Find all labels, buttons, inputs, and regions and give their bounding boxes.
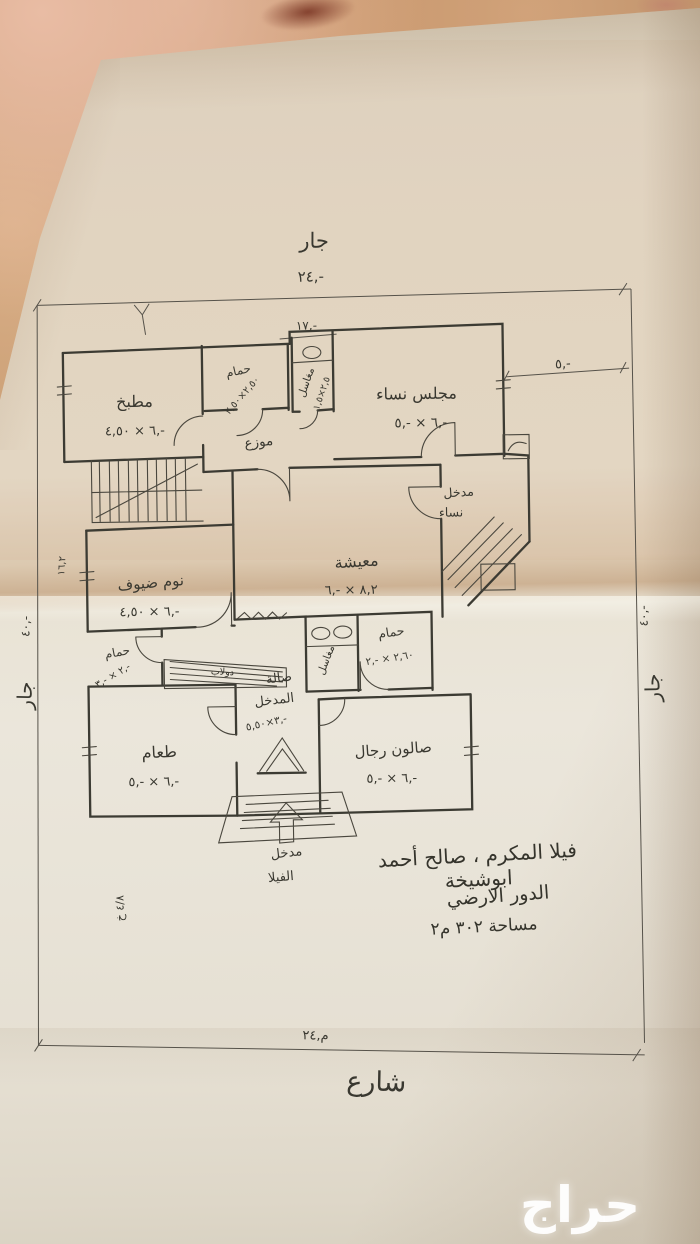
label-living: معيشة — [334, 550, 379, 572]
floor-plan-drawing: جار ٢٤,- ١٧,- ٥,- جار ٤٠,- جار ٤٠,- ١٦,٢… — [0, 0, 700, 1244]
label-neighbor-right: جار — [640, 673, 664, 702]
label-wash-top-dims: ١,٥×٢,٥ — [311, 375, 333, 411]
label-dim-top: ٢٤,- — [298, 267, 325, 285]
up-arrow-icon — [270, 803, 303, 843]
label-bath-mid-dims: ٢,- × ٢,٦٠ — [365, 649, 415, 668]
label-dim-right: ٤٠,- — [636, 605, 650, 626]
label-salon-men-dims: ٥,- × ٦,- — [366, 771, 417, 787]
label-entrance-women-2: نساء — [439, 504, 464, 519]
label-dining-dims: ٥,- × ٦,- — [128, 774, 179, 790]
label-living-dims: ٦,- × ٨,٢ — [325, 583, 378, 599]
label-entry-hall-dims: ٥,٥٠×٣,- — [245, 713, 289, 734]
staircase — [91, 458, 203, 523]
label-closet: دولاب — [211, 666, 235, 678]
label-dining: طعام — [141, 742, 177, 763]
label-majlis-women-dims: ٥,- × ٦,- — [394, 415, 447, 432]
label-neighbor-top: جار — [298, 229, 329, 253]
floor-plan-photo: جار ٢٤,- ١٧,- ٥,- جار ٤٠,- جار ٤٠,- ١٦,٢… — [0, 0, 700, 1244]
label-entry-hall: صالة — [265, 670, 293, 688]
label-bath-left: حمام — [104, 643, 132, 662]
label-kitchen: مطبخ — [116, 392, 153, 413]
label-kitchen-dims: ٤,٥٠ × ٦,- — [105, 424, 166, 440]
label-dim-street: ٢٤,م — [302, 1028, 328, 1044]
label-dim-inner-top: ١٧,- — [296, 318, 317, 332]
label-wash-top: مغاسل — [296, 366, 317, 399]
label-neighbor-left: جار — [12, 681, 37, 711]
label-dim-setback-right: ٥,- — [554, 356, 571, 372]
label-hallway: موزع — [244, 433, 274, 452]
label-villa-entrance-2: الفيلا — [267, 869, 294, 886]
label-wash-mid: مغاسل — [315, 644, 337, 677]
site-watermark: حراج — [470, 1176, 690, 1234]
label-entry-hall-2: المدخل — [254, 691, 295, 711]
villa-entrance-steps — [218, 792, 357, 844]
label-street: شارع — [346, 1066, 407, 1098]
label-note-bottom-left: خ ٤/٨ — [113, 895, 126, 921]
label-guest-bedroom: نوم ضيوف — [117, 571, 185, 595]
label-guest-bedroom-dims: ٤,٥٠ × ٦,- — [119, 604, 180, 620]
label-bath-top-dims: ٢,٥٠×٢,٥٠ — [223, 375, 262, 418]
label-entrance-women: مدخل — [443, 483, 474, 500]
label-majlis-women: مجلس نساء — [376, 383, 457, 404]
dimension-lines — [134, 297, 629, 387]
label-dim-left: ٤٠,- — [18, 616, 32, 637]
label-bath-top: حمام — [224, 361, 252, 380]
label-bath-mid: حمام — [377, 623, 405, 642]
double-door — [257, 738, 305, 774]
label-salon-men: صالون رجال — [354, 738, 432, 761]
label-edge-note-left: ١٦,٢ — [56, 556, 68, 576]
label-villa-entrance: مدخل — [270, 844, 303, 863]
